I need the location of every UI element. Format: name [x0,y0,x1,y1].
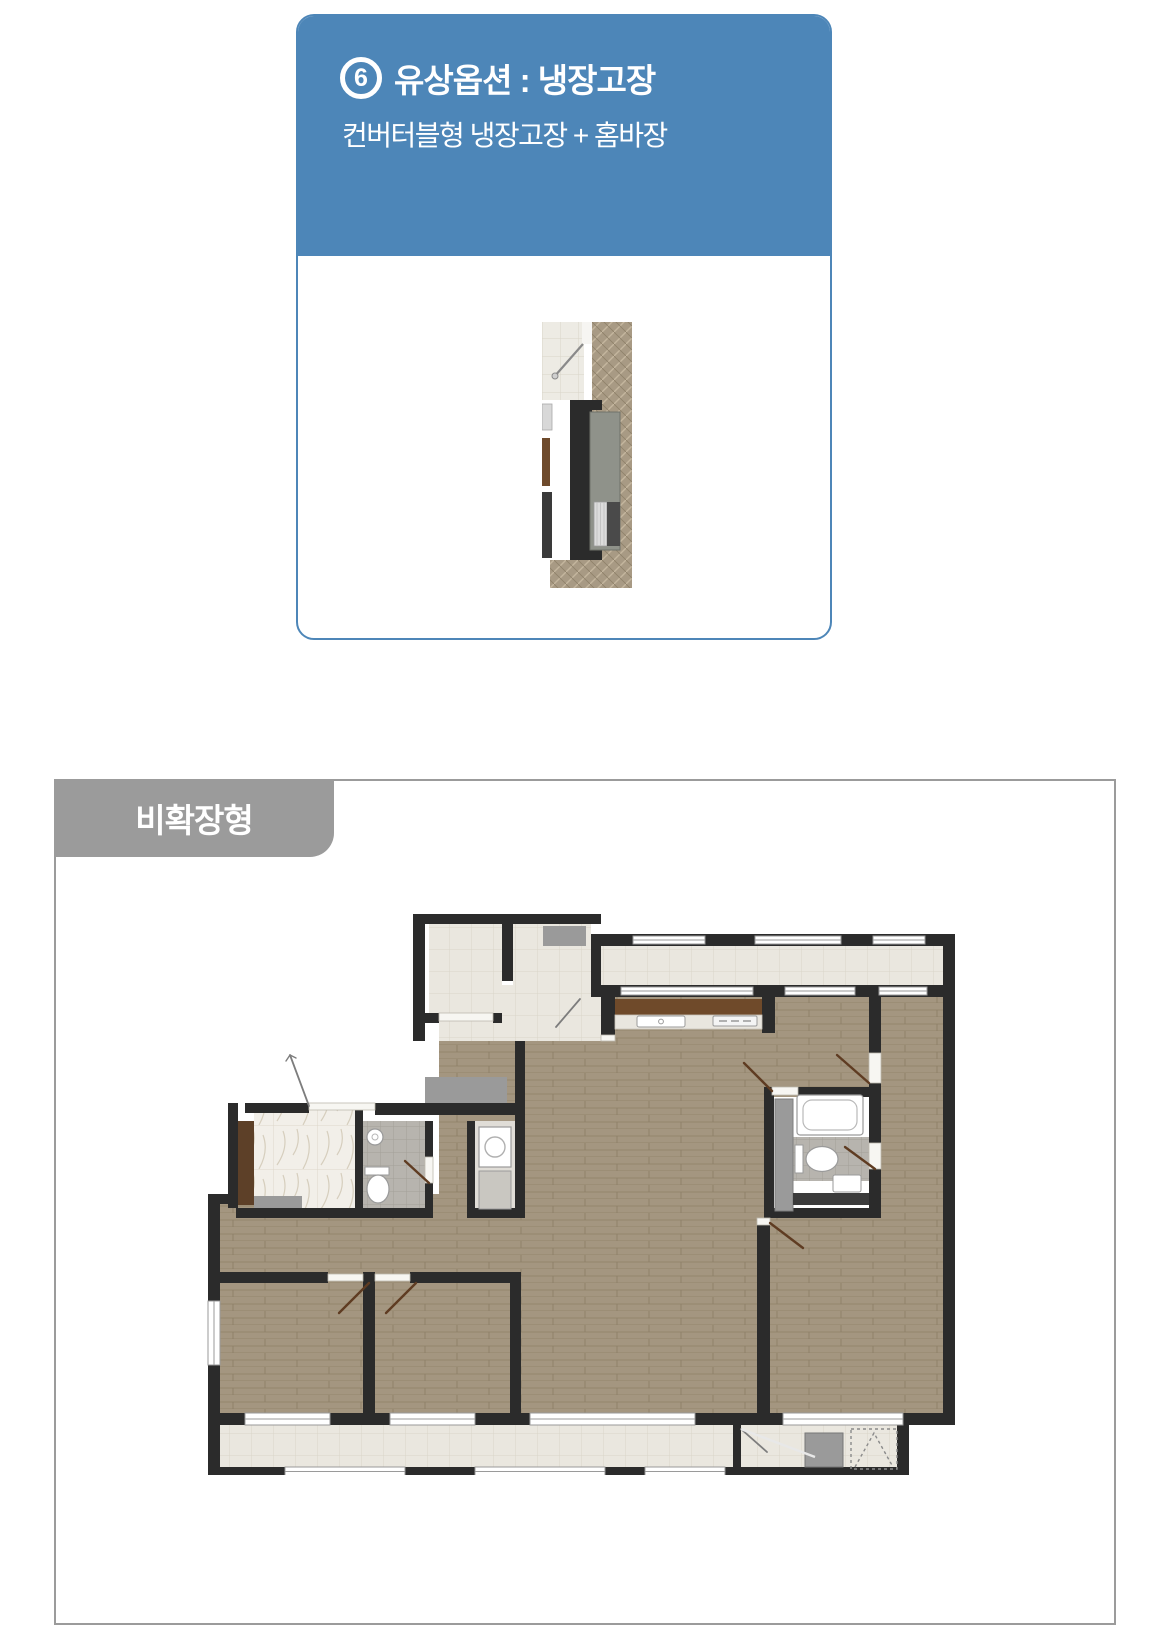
entry-tile-floor [542,322,584,400]
detail-svg [542,320,632,588]
floorplan-image [185,905,955,1475]
badge-6-icon: 6 [340,57,382,99]
ac-unit [805,1433,843,1467]
shower-room-door-swing [290,1055,309,1106]
north-balcony-floor [601,946,943,985]
bath-sink-icon [367,1129,383,1145]
laundry-cabinet [479,1171,511,1209]
toilet [806,1147,838,1172]
vanity-sink [833,1175,861,1192]
adjacent-fixture-light [542,404,552,430]
wall-band [570,400,592,560]
shaft-mid [425,1077,507,1103]
option-card-header: 6 유상옵션 : 냉장고장 컨버터블형 냉장고장 + 홈바장 [298,16,830,256]
adjacent-fixture-brown [542,438,550,486]
door-sill [582,322,592,344]
kitchen-counter [615,999,762,1015]
option-card-subtitle: 컨버터블형 냉장고장 + 홈바장 [342,114,667,154]
herringbone-floor-bottom [550,560,594,588]
detail-floor-layers [542,322,632,588]
wall-nub-top [570,400,602,410]
vanity-counter [793,1193,869,1205]
refrigerator-cabinet-detail-image [542,320,632,588]
plan-type-label: 비확장형 [135,794,252,842]
plan-type-tab: 비확장형 [54,779,334,857]
wall-nub-bottom [570,550,602,560]
badge-number: 6 [354,66,368,91]
entry-sill [439,1013,493,1021]
kitchen [615,999,762,1029]
wardrobe-cabinet [238,1121,254,1205]
bath-closet [775,1099,793,1211]
shaft-left [254,1196,302,1210]
door-hinge-dot [552,373,558,379]
toilet2-tank [365,1167,389,1175]
brochure-page: 6 유상옵션 : 냉장고장 컨버터블형 냉장고장 + 홈바장 [0,0,1170,1631]
cabinet-dark-section [607,502,620,546]
floorplan-panel: 비확장형 [54,779,1116,1625]
kitchen-sink [637,1016,685,1027]
south-balcony-floor [218,1425,733,1467]
toilet2 [367,1175,389,1203]
floorplan-svg [185,905,955,1475]
option-card-title: 유상옵션 : 냉장고장 [394,54,655,102]
adjacent-fixture-dark [542,492,552,558]
toilet-tank [795,1145,803,1173]
option-card: 6 유상옵션 : 냉장고장 컨버터블형 냉장고장 + 홈바장 [296,14,832,640]
option-card-title-row: 6 유상옵션 : 냉장고장 [340,54,655,102]
shaft-top [543,926,586,946]
washer [479,1127,511,1167]
